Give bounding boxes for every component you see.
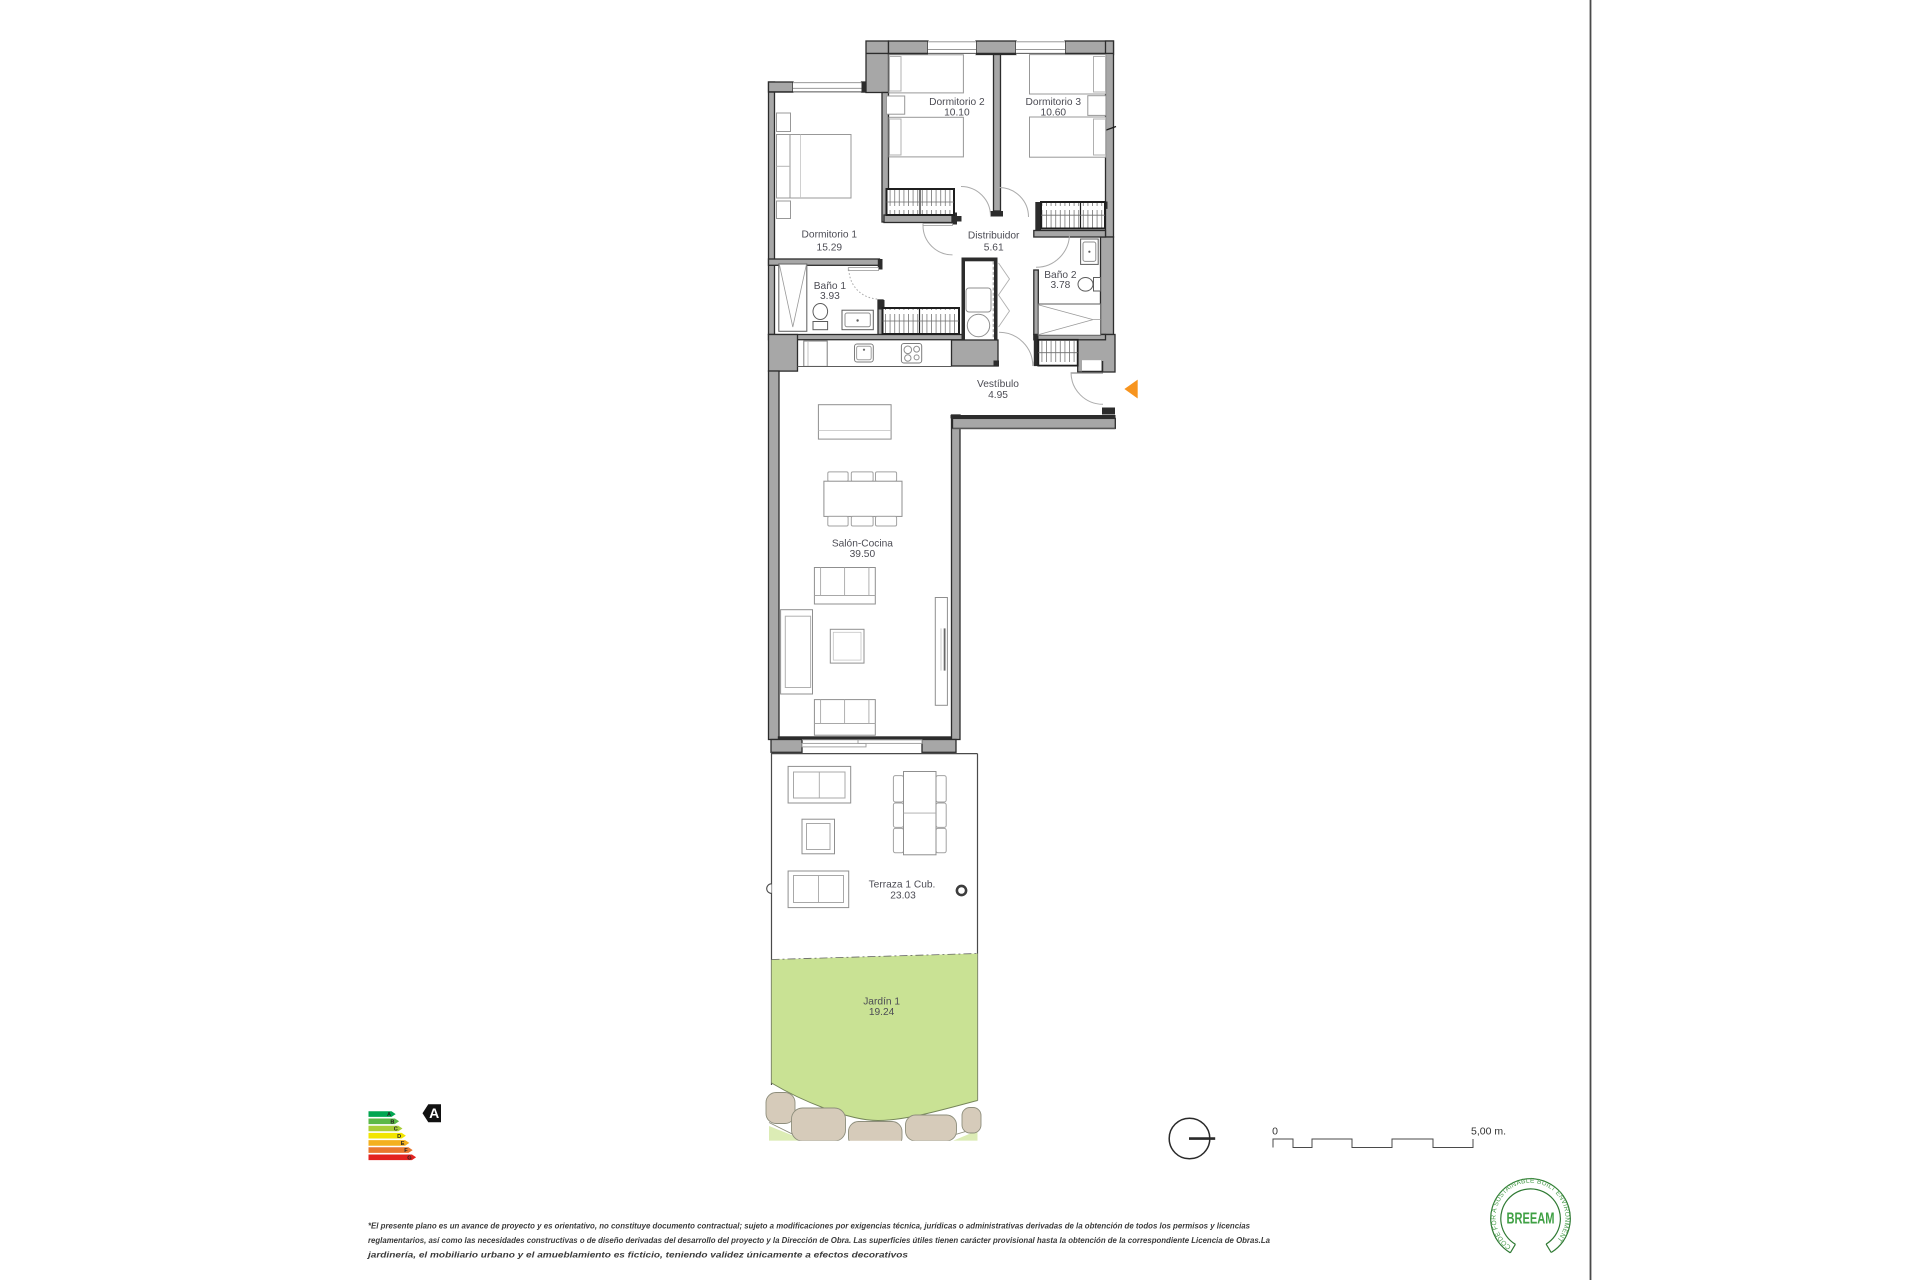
svg-text:Dormitorio 3: Dormitorio 3 [1026,97,1082,108]
svg-text:E: E [401,1141,405,1147]
svg-text:B: B [390,1119,394,1125]
svg-text:23.03: 23.03 [890,891,916,902]
svg-text:3.93: 3.93 [820,291,840,302]
svg-text:jardinería, el mobiliario urba: jardinería, el mobiliario urbano y el am… [367,1251,909,1260]
svg-text:3.78: 3.78 [1050,280,1070,291]
svg-text:Vestíbulo: Vestíbulo [977,379,1019,390]
svg-text:F: F [404,1148,408,1154]
svg-text:A: A [429,1105,439,1121]
svg-text:Jardín 1: Jardín 1 [863,996,900,1007]
svg-text:Terraza 1 Cub.: Terraza 1 Cub. [869,879,936,890]
svg-text:10.10: 10.10 [944,108,970,119]
svg-text:BREEAM: BREEAM [1507,1211,1555,1228]
svg-text:*El presente plano es un avanc: *El presente plano es un avance de proye… [368,1222,1251,1231]
svg-text:10.60: 10.60 [1041,108,1067,119]
svg-text:reglamentarios, así como las n: reglamentarios, así como las necesidades… [368,1236,1271,1245]
svg-text:Distribuidor: Distribuidor [968,231,1020,242]
svg-text:Salón-Cocina: Salón-Cocina [832,538,893,549]
svg-text:A: A [387,1112,391,1118]
svg-text:0: 0 [1272,1126,1278,1138]
svg-text:D: D [397,1134,401,1140]
svg-text:Dormitorio 1: Dormitorio 1 [802,230,858,241]
svg-text:15.29: 15.29 [817,243,843,254]
svg-text:4.95: 4.95 [988,390,1008,401]
svg-text:Dormitorio 2: Dormitorio 2 [929,97,985,108]
svg-text:C: C [394,1127,398,1133]
svg-text:39.50: 39.50 [850,549,876,560]
svg-text:19.24: 19.24 [869,1007,895,1018]
svg-text:5.61: 5.61 [984,243,1004,254]
svg-text:G: G [407,1155,411,1161]
svg-text:5,00 m.: 5,00 m. [1471,1126,1506,1138]
